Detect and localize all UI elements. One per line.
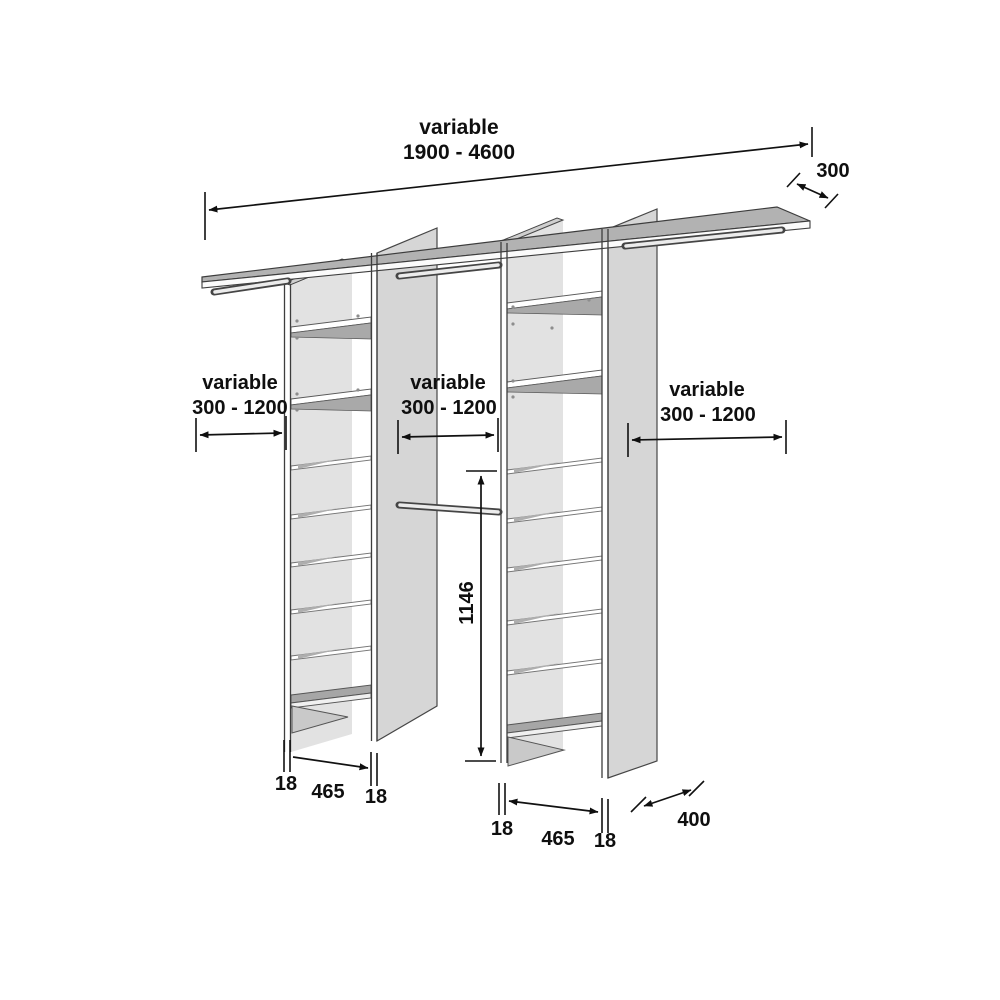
total-width-range: 1900 - 4600 <box>403 141 515 164</box>
shelf-peg <box>356 314 359 317</box>
top-shelf-front-face <box>202 221 810 288</box>
wardrobe-drawing <box>202 207 810 778</box>
shelf-peg <box>295 408 298 411</box>
shelf-peg <box>511 305 514 308</box>
top-shelf-top-face <box>202 207 810 282</box>
shelf-peg <box>511 395 514 398</box>
dimension-tower-depth: 400 <box>631 781 711 831</box>
shelf-peg <box>511 379 514 382</box>
shelf-peg <box>550 326 553 329</box>
right-tower-panel-right-label: 18 <box>594 830 616 852</box>
tower-depth-label: 400 <box>677 809 710 831</box>
diagram-canvas: variable 1900 - 4600 300 variable 300 - … <box>0 0 1000 1000</box>
gap-left-label: variable <box>202 372 278 394</box>
gap-right-range: 300 - 1200 <box>660 404 756 426</box>
shelf-peg <box>511 322 514 325</box>
shelf-depth-label: 300 <box>816 160 849 182</box>
right-tower-inner-width-label: 465 <box>541 828 574 850</box>
shelf-peg <box>587 298 590 301</box>
gap-right-label: variable <box>669 379 745 401</box>
left-tower-right-panel <box>377 228 437 741</box>
top-shelf <box>202 207 810 288</box>
dimension-right-tower-bottom: 18 465 18 <box>491 783 616 852</box>
total-width-label: variable <box>419 116 498 139</box>
left-tower-inner-width-label: 465 <box>311 781 344 803</box>
wardrobe-dimension-diagram: variable 1900 - 4600 300 variable 300 - … <box>0 0 1000 1000</box>
gap-middle-range: 300 - 1200 <box>401 397 497 419</box>
dimension-gap-left: variable 300 - 1200 <box>192 372 288 452</box>
tower-height-label: 1146 <box>456 581 478 624</box>
right-tower-unit <box>501 209 657 778</box>
shelf-peg <box>295 392 298 395</box>
left-tower-panel-right-label: 18 <box>365 786 387 808</box>
left-tower-unit <box>284 228 437 752</box>
right-tower-panel-left-label: 18 <box>491 818 513 840</box>
shelf-peg <box>295 336 298 339</box>
gap-middle-label: variable <box>410 372 486 394</box>
right-tower-right-panel <box>608 209 657 778</box>
gap-left-range: 300 - 1200 <box>192 397 288 419</box>
shelf-peg <box>295 319 298 322</box>
dimension-shelf-depth: 300 <box>787 160 850 208</box>
shelf-peg <box>356 388 359 391</box>
left-tower-panel-left-label: 18 <box>275 773 297 795</box>
